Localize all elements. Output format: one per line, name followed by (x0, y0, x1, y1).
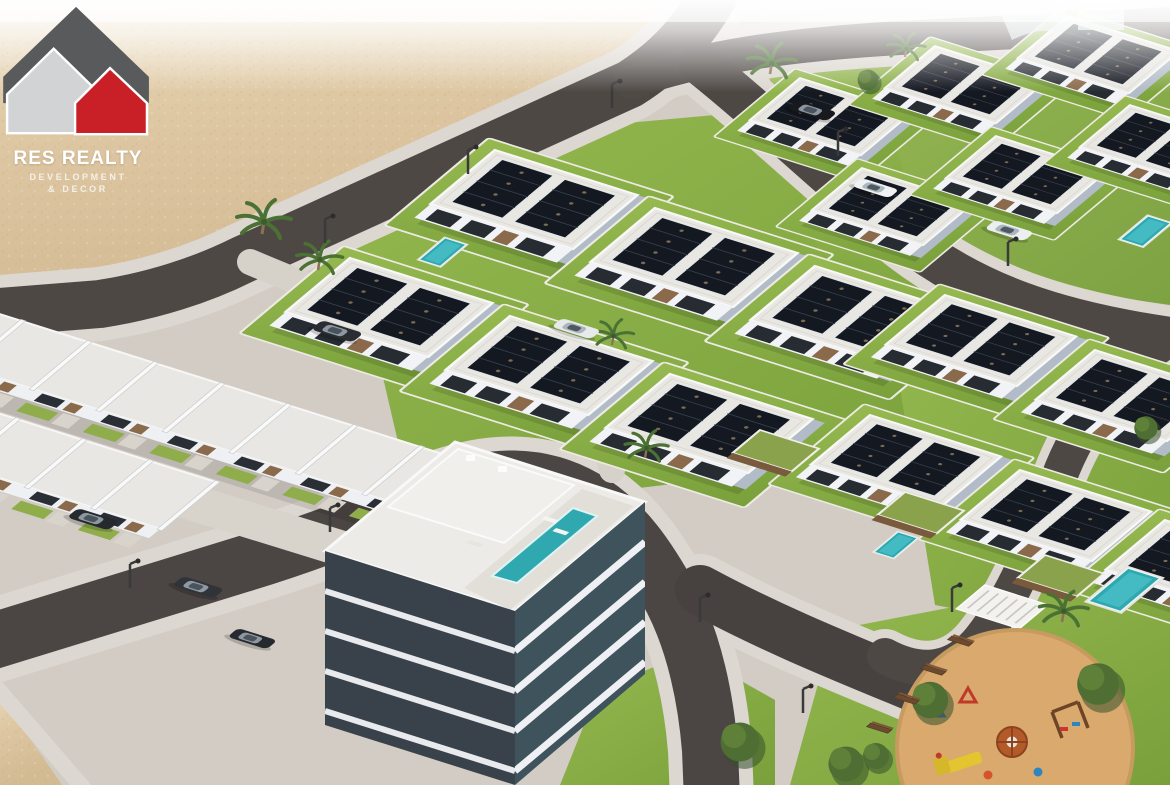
rooftop-ac-unit (498, 466, 507, 472)
rooftop-ac-unit (466, 455, 475, 461)
logo-subtitle-line2: & DECOR (2, 184, 154, 194)
render-image: RES REALTY DEVELOPMENT & DECOR (0, 0, 1170, 785)
logo: RES REALTY DEVELOPMENT & DECOR (2, 4, 154, 194)
logo-house-icon (3, 4, 153, 140)
haze-top-strip (0, 0, 1170, 22)
logo-subtitle-line1: DEVELOPMENT (2, 172, 154, 182)
spring-rider (984, 771, 993, 780)
logo-title: RES REALTY (2, 148, 154, 170)
spring-rider (1034, 768, 1043, 777)
scene-svg (0, 0, 1170, 785)
playground-roundabout (997, 727, 1027, 757)
